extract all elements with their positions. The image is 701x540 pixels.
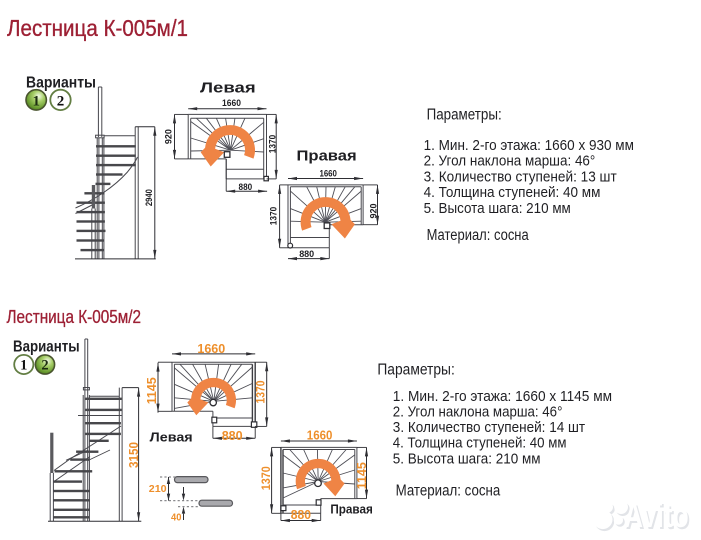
- svg-text:880: 880: [291, 507, 311, 522]
- svg-text:1145: 1145: [144, 377, 159, 404]
- svg-text:1370: 1370: [268, 135, 278, 154]
- svg-text:1145: 1145: [355, 462, 369, 489]
- svg-text:880: 880: [299, 249, 314, 259]
- svg-text:1370: 1370: [254, 380, 268, 403]
- svg-text:40: 40: [171, 513, 182, 524]
- svg-text:1660: 1660: [307, 429, 333, 443]
- svg-text:1: 1: [20, 358, 27, 374]
- svg-text:Лестница К-005м/2: Лестница К-005м/2: [7, 307, 142, 327]
- svg-text:Лестница К-005м/1: Лестница К-005м/1: [7, 15, 188, 41]
- svg-text:210: 210: [149, 484, 167, 495]
- svg-text:Материал: сосна: Материал: сосна: [427, 227, 529, 244]
- svg-text:Материал: сосна: Материал: сосна: [396, 483, 501, 500]
- svg-text:4. Толщина ступеней: 40 мм: 4. Толщина ступеней: 40 мм: [424, 184, 601, 201]
- svg-text:3. Количество ступеней: 14 шт: 3. Количество ступеней: 14 шт: [393, 419, 585, 436]
- svg-text:1370: 1370: [268, 207, 278, 226]
- svg-text:5. Высота шага: 210 мм: 5. Высота шага: 210 мм: [393, 450, 541, 467]
- svg-text:4. Толщина ступеней: 40 мм: 4. Толщина ступеней: 40 мм: [393, 435, 567, 452]
- svg-text:2940: 2940: [144, 189, 154, 206]
- svg-text:Параметры:: Параметры:: [427, 106, 502, 123]
- svg-text:3150: 3150: [127, 442, 141, 468]
- svg-text:920: 920: [369, 204, 379, 219]
- svg-text:Правая: Правая: [297, 148, 357, 165]
- svg-text:1. Мин. 2-го этажа: 1660 x 114: 1. Мин. 2-го этажа: 1660 x 1145 мм: [393, 388, 612, 405]
- svg-text:2. Угол наклона марша: 46°: 2. Угол наклона марша: 46°: [393, 404, 563, 421]
- svg-text:1370: 1370: [259, 466, 273, 490]
- svg-text:2. Угол наклона марша: 46°: 2. Угол наклона марша: 46°: [424, 153, 596, 170]
- svg-text:Правая: Правая: [330, 502, 372, 517]
- svg-text:Avito: Avito: [624, 497, 689, 535]
- svg-text:Левая: Левая: [150, 429, 193, 444]
- svg-text:1: 1: [32, 93, 40, 109]
- svg-text:3. Количество ступеней: 13 шт: 3. Количество ступеней: 13 шт: [424, 168, 617, 185]
- svg-text:2: 2: [41, 358, 48, 374]
- svg-text:880: 880: [239, 182, 253, 192]
- svg-text:Варианты: Варианты: [13, 338, 80, 355]
- svg-text:2: 2: [57, 93, 65, 109]
- svg-text:1660: 1660: [197, 342, 225, 356]
- svg-text:Параметры:: Параметры:: [377, 361, 454, 378]
- svg-text:1. Мин. 2-го этажа: 1660 x 930: 1. Мин. 2-го этажа: 1660 x 930 мм: [424, 137, 634, 154]
- svg-text:5. Высота шага: 210 мм: 5. Высота шага: 210 мм: [424, 200, 571, 217]
- svg-text:920: 920: [164, 129, 174, 144]
- svg-text:Левая: Левая: [200, 79, 256, 96]
- svg-text:880: 880: [222, 428, 243, 443]
- svg-text:1660: 1660: [319, 168, 337, 178]
- svg-text:1660: 1660: [222, 98, 241, 108]
